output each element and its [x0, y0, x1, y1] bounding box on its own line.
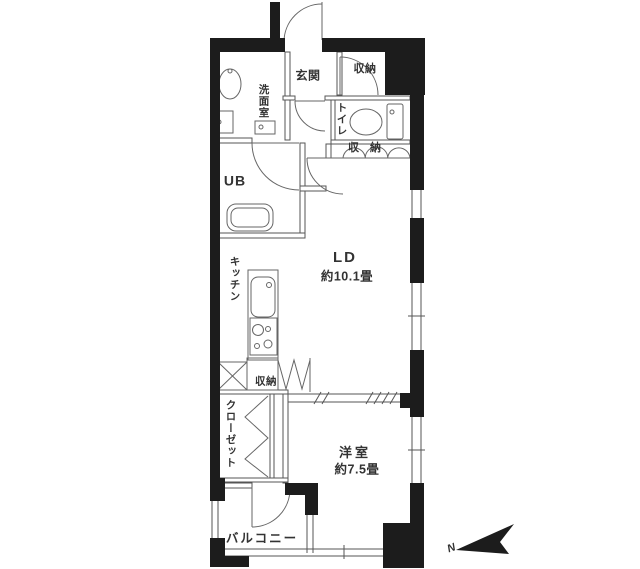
wall-ub-kitchen-divider: [218, 233, 305, 238]
wall-closet-right: [270, 394, 274, 478]
washbasin-tap: [228, 69, 232, 73]
toilet-bowl: [350, 109, 382, 135]
balcony-door-swing: [252, 489, 290, 527]
label-balcony: バルコニー: [226, 532, 298, 545]
ld-bedroom-partition: [288, 392, 400, 404]
kitchen-tap: [267, 283, 272, 288]
label-toilet: トイレ: [335, 102, 346, 137]
label-storage-hall: 収納: [348, 143, 392, 155]
label-living-dining-size: 約10.1畳: [321, 270, 373, 283]
wall-right-2: [410, 218, 424, 283]
fixtures: [213, 69, 403, 390]
closet-bifold: [245, 396, 268, 477]
label-unit-bath: UB: [224, 174, 246, 189]
wall-closet-bottom: [218, 478, 288, 482]
toilet-tank: [387, 104, 403, 139]
label-bedroom: 洋室: [339, 446, 371, 460]
label-kitchen: キッチン: [228, 256, 239, 302]
north-arrow-icon: [456, 524, 514, 554]
label-entrance: 玄関: [295, 70, 320, 83]
wall-toilet-top: [325, 96, 410, 100]
label-washroom: 洗面室: [257, 84, 268, 119]
wall-toilet-left: [331, 100, 335, 140]
label-storage-entrance: 収納: [354, 64, 377, 76]
floor-plan-drawing: [0, 0, 640, 569]
floor-plan: 玄関 収納 洗面室 トイレ 収納 UB キッチン LD 約10.1畳 収納 クロ…: [0, 0, 640, 569]
wall-bottomright-corner: [383, 523, 410, 568]
wall-closet-top: [218, 390, 288, 394]
entrance-door-swing: [284, 4, 322, 42]
wall-entrance-pillar: [270, 2, 280, 40]
wall-balcony-post-top: [210, 478, 225, 501]
label-closet: クローゼット: [224, 400, 235, 469]
bathtub-inner: [231, 208, 269, 227]
kitchen-sink: [251, 277, 275, 317]
label-storage-kitchen: 収納: [255, 376, 277, 387]
burner-1: [253, 325, 264, 336]
label-living-dining: LD: [333, 250, 357, 266]
wall-bedroom-left: [283, 394, 288, 483]
washroom-door-swing: [252, 143, 299, 190]
stove: [250, 318, 277, 355]
wall-washroom-ub-divider: [218, 138, 252, 143]
wall-right-1: [410, 52, 424, 190]
wall-right-4: [410, 483, 424, 568]
wall-top-right: [322, 38, 425, 52]
wall-entrance-bottom-left: [283, 96, 295, 100]
wall-top-left: [210, 38, 285, 52]
wall-balcony-post-bottom: [210, 538, 225, 567]
hall-door-swing: [295, 101, 325, 131]
label-bedroom-size: 約7.5畳: [335, 463, 380, 476]
washroom-counter: [255, 121, 275, 134]
wall-balcony-block-v: [305, 483, 318, 515]
wall-storage-hall-left: [326, 144, 331, 158]
wall-bottom-extension: [225, 556, 249, 567]
wall-partition-stub: [400, 393, 424, 408]
wall-left: [210, 38, 220, 480]
kitchen-storage-bifold: [278, 360, 310, 389]
burner-2: [264, 340, 272, 348]
